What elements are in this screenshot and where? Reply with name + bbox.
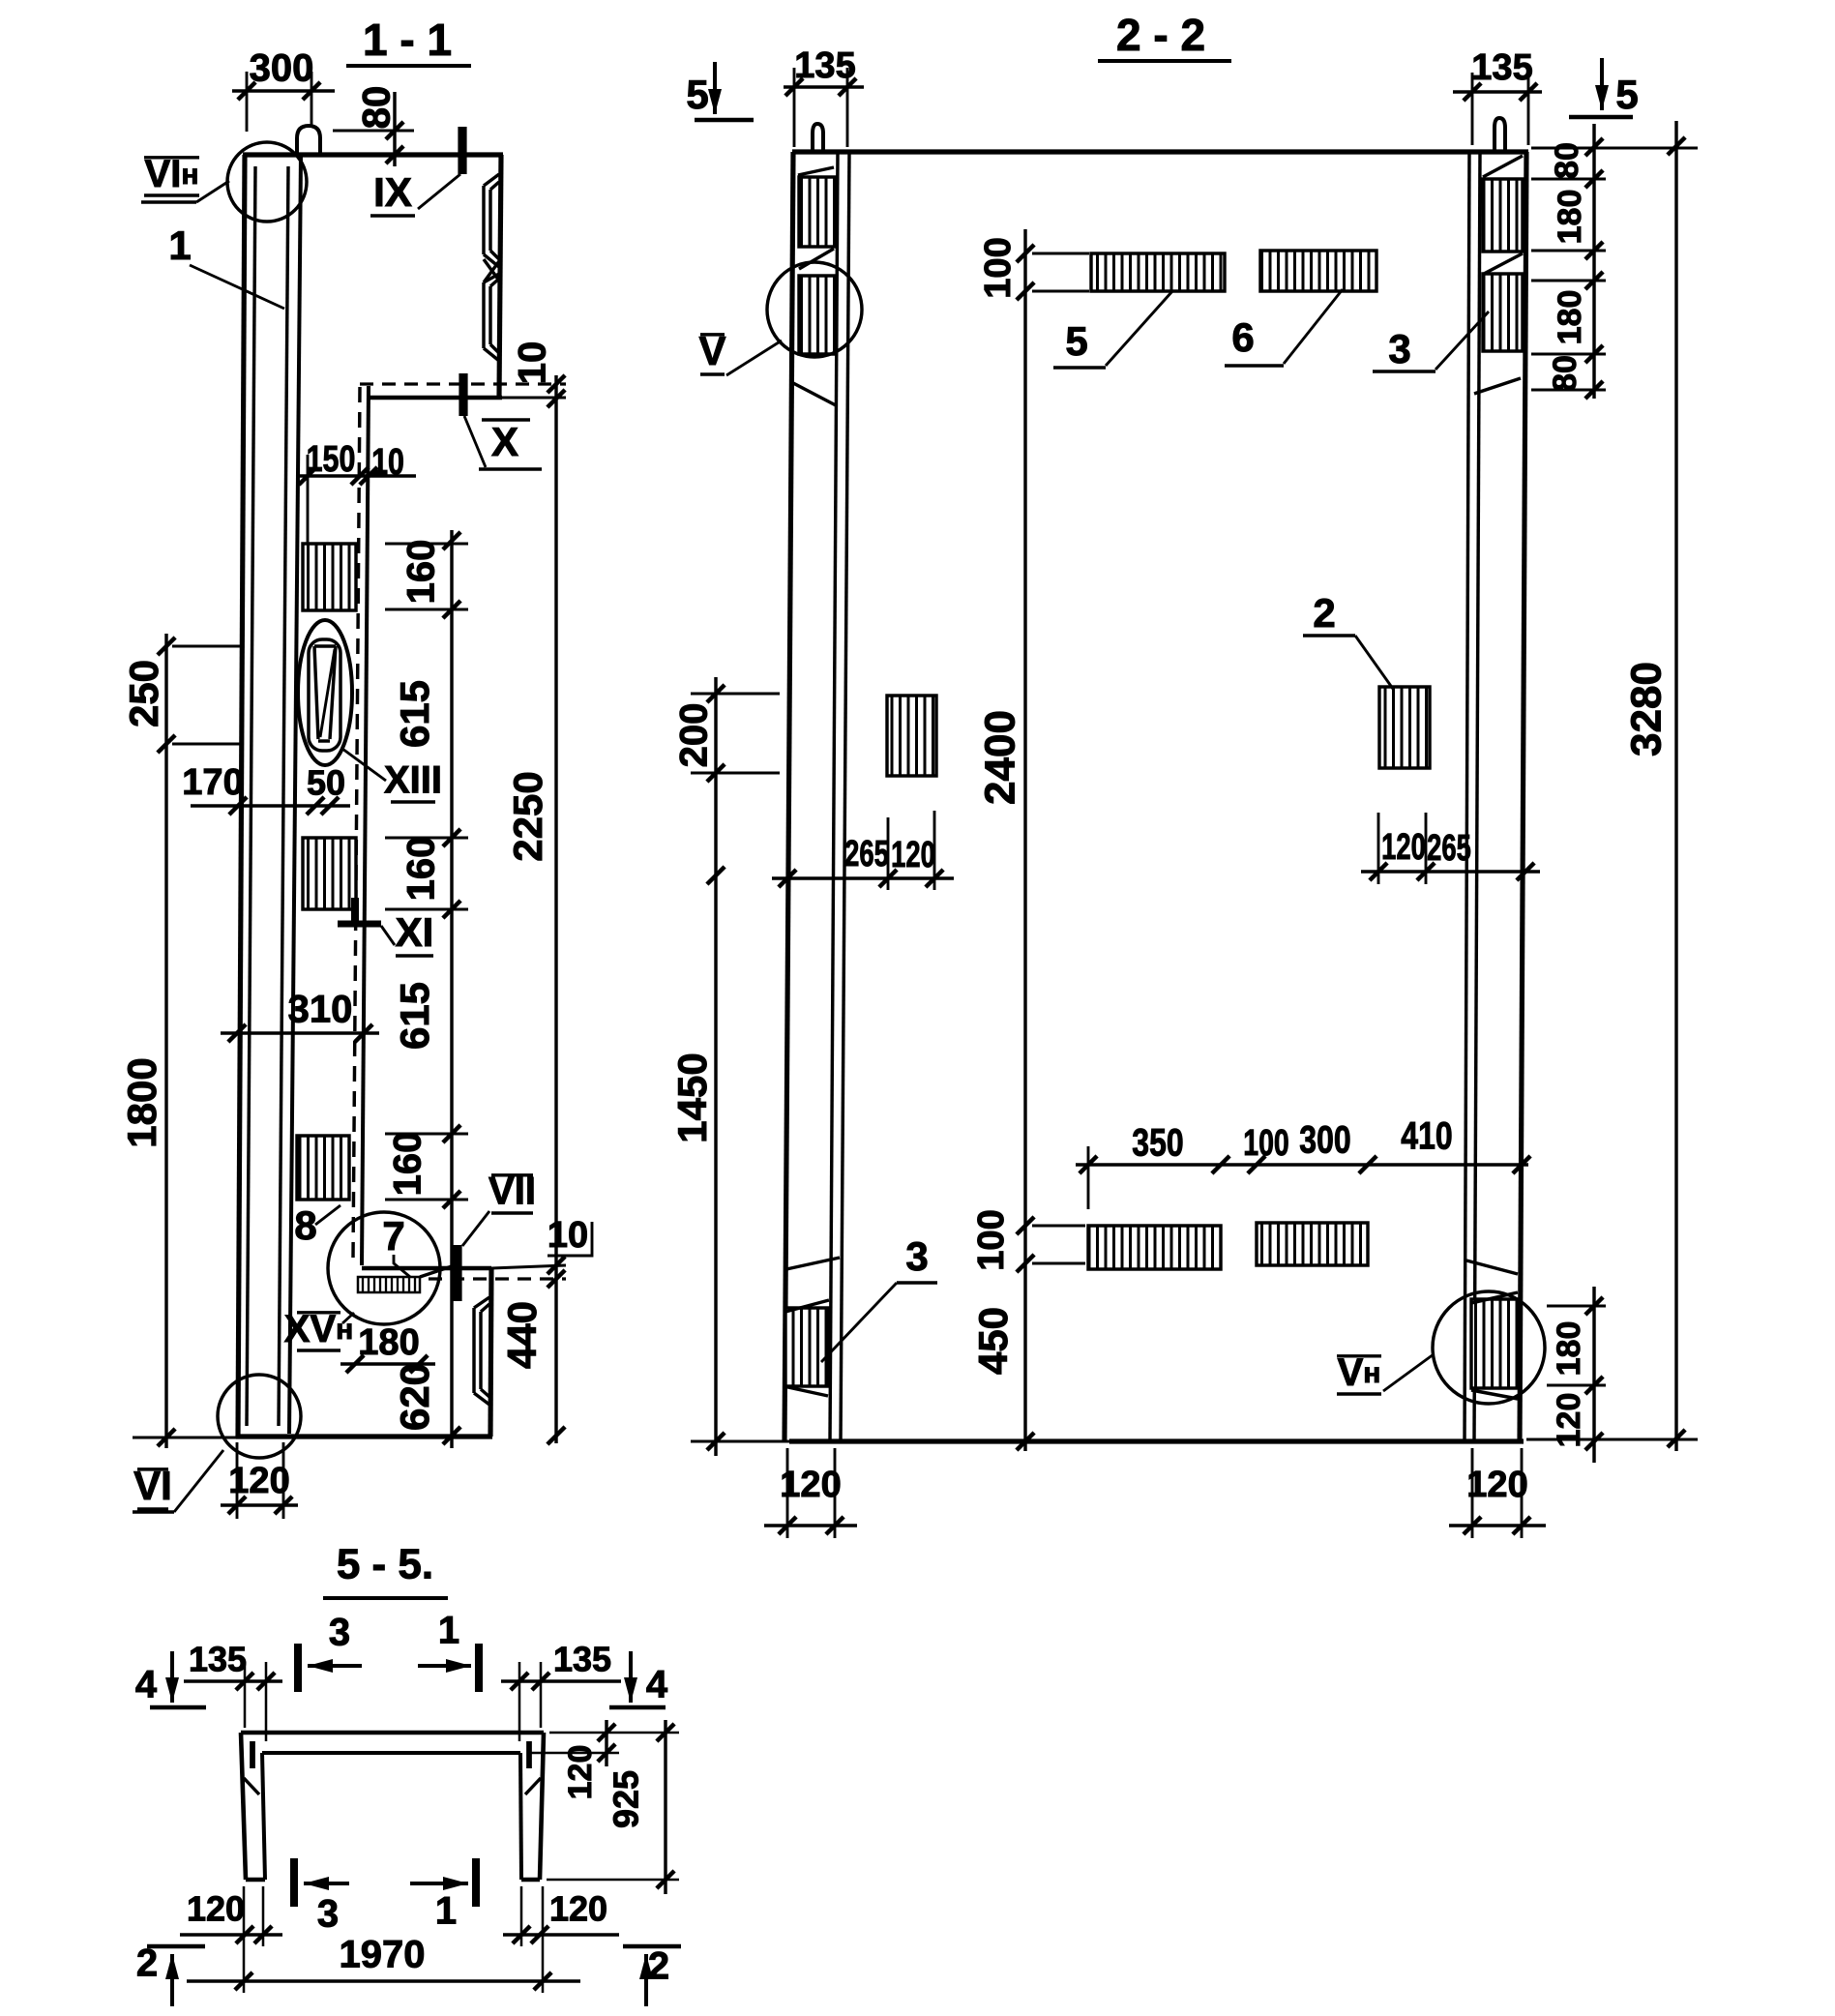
svg-text:6: 6 xyxy=(1231,314,1254,360)
svg-text:100: 100 xyxy=(971,1209,1012,1270)
svg-text:5: 5 xyxy=(1065,318,1087,364)
svg-text:3: 3 xyxy=(1388,326,1410,371)
svg-text:2400: 2400 xyxy=(977,710,1024,805)
svg-text:1450: 1450 xyxy=(669,1052,715,1142)
svg-text:450: 450 xyxy=(970,1307,1016,1375)
svg-text:180: 180 xyxy=(1552,290,1588,345)
svg-text:1: 1 xyxy=(168,222,191,268)
svg-text:XI: XI xyxy=(396,909,434,955)
svg-text:1800: 1800 xyxy=(119,1057,164,1147)
svg-text:160: 160 xyxy=(387,1132,429,1197)
svg-text:440: 440 xyxy=(499,1301,545,1369)
svg-text:5: 5 xyxy=(1615,72,1638,117)
svg-text:3: 3 xyxy=(329,1612,350,1654)
svg-text:135: 135 xyxy=(189,1640,247,1679)
svg-text:120: 120 xyxy=(780,1465,841,1505)
svg-text:7: 7 xyxy=(382,1213,404,1259)
svg-text:1: 1 xyxy=(438,1610,459,1652)
svg-text:80: 80 xyxy=(356,86,399,130)
svg-text:310: 310 xyxy=(288,989,353,1031)
svg-text:615: 615 xyxy=(392,982,437,1050)
svg-text:135: 135 xyxy=(1471,47,1532,88)
svg-text:10: 10 xyxy=(548,1215,588,1256)
svg-text:8: 8 xyxy=(294,1202,316,1248)
svg-text:200: 200 xyxy=(673,703,716,768)
svg-text:2: 2 xyxy=(1313,590,1335,636)
svg-text:1970: 1970 xyxy=(340,1934,426,1976)
svg-text:120: 120 xyxy=(187,1889,245,1929)
svg-text:5 - 5.: 5 - 5. xyxy=(337,1541,433,1588)
svg-text:180: 180 xyxy=(358,1322,419,1363)
svg-text:120: 120 xyxy=(549,1889,607,1929)
svg-text:80: 80 xyxy=(1547,355,1583,392)
svg-text:135: 135 xyxy=(553,1640,611,1679)
svg-text:135: 135 xyxy=(794,45,855,86)
svg-text:180: 180 xyxy=(1552,190,1588,245)
svg-text:410: 410 xyxy=(1401,1113,1452,1157)
svg-text:1: 1 xyxy=(435,1890,457,1933)
svg-text:925: 925 xyxy=(607,1770,646,1828)
svg-text:265: 265 xyxy=(1427,828,1471,869)
svg-text:160: 160 xyxy=(400,540,443,605)
svg-text:50: 50 xyxy=(307,763,345,803)
svg-text:XIII: XIII xyxy=(384,759,442,802)
svg-text:100: 100 xyxy=(1243,1123,1289,1164)
svg-text:300: 300 xyxy=(1299,1117,1350,1161)
svg-text:120: 120 xyxy=(891,835,935,875)
svg-text:615: 615 xyxy=(392,680,437,748)
svg-text:120: 120 xyxy=(1381,827,1426,868)
svg-text:3: 3 xyxy=(905,1233,928,1279)
svg-text:4: 4 xyxy=(135,1664,158,1706)
svg-text:100: 100 xyxy=(978,237,1019,298)
svg-text:2 - 2: 2 - 2 xyxy=(1116,10,1205,60)
svg-text:2250: 2250 xyxy=(505,771,550,861)
svg-text:3280: 3280 xyxy=(1623,662,1671,756)
svg-text:150: 150 xyxy=(307,439,356,480)
svg-text:4: 4 xyxy=(646,1664,668,1706)
svg-text:180: 180 xyxy=(1551,1321,1587,1377)
svg-text:10: 10 xyxy=(371,442,404,483)
svg-text:170: 170 xyxy=(182,762,243,803)
svg-text:160: 160 xyxy=(400,837,443,902)
svg-text:350: 350 xyxy=(1132,1120,1183,1164)
svg-text:2: 2 xyxy=(648,1945,669,1988)
svg-text:3: 3 xyxy=(317,1893,339,1936)
svg-text:IX: IX xyxy=(373,169,412,215)
svg-text:265: 265 xyxy=(844,834,889,875)
svg-text:X: X xyxy=(491,419,518,464)
svg-text:120: 120 xyxy=(1551,1393,1587,1448)
svg-text:10: 10 xyxy=(512,341,554,385)
svg-text:250: 250 xyxy=(121,660,166,727)
svg-text:1 - 1: 1 - 1 xyxy=(363,15,452,65)
svg-text:5: 5 xyxy=(686,72,708,117)
svg-text:120: 120 xyxy=(1466,1465,1527,1505)
svg-text:620: 620 xyxy=(392,1363,437,1431)
svg-text:120: 120 xyxy=(228,1461,289,1501)
svg-text:300: 300 xyxy=(250,47,314,90)
